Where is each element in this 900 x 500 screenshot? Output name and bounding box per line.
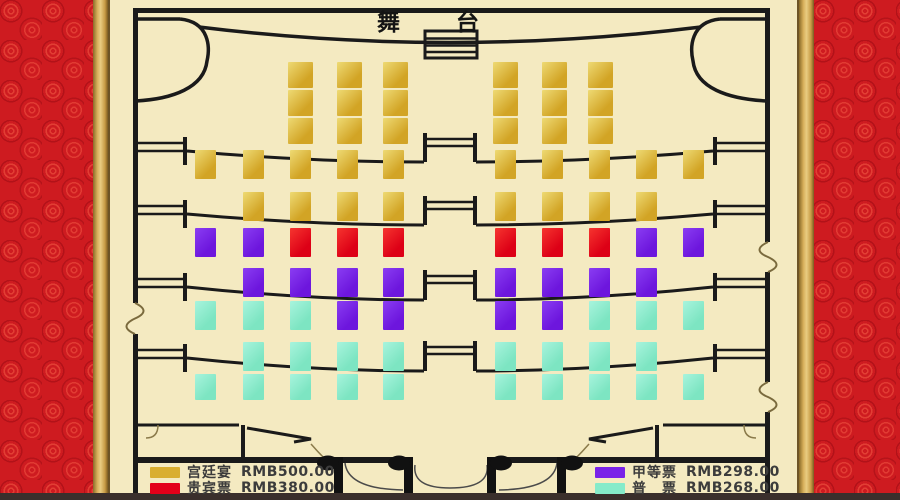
- seat-gold[interactable]: [542, 150, 563, 179]
- legend-label: 普 票: [632, 478, 677, 498]
- seat-gold[interactable]: [383, 192, 404, 221]
- seat-purple[interactable]: [243, 268, 264, 297]
- seat-teal[interactable]: [243, 342, 264, 371]
- seat-teal[interactable]: [589, 301, 610, 330]
- seat-gold[interactable]: [337, 150, 358, 179]
- seat-gold[interactable]: [290, 150, 311, 179]
- seat-purple[interactable]: [290, 268, 311, 297]
- seat-gold[interactable]: [383, 90, 408, 116]
- seat-red[interactable]: [542, 228, 563, 257]
- seat-teal[interactable]: [243, 301, 264, 330]
- seat-red[interactable]: [337, 228, 358, 257]
- seat-gold[interactable]: [493, 62, 518, 88]
- seat-gold[interactable]: [337, 118, 362, 144]
- seat-teal[interactable]: [589, 342, 610, 371]
- seat-gold[interactable]: [493, 118, 518, 144]
- seat-teal[interactable]: [542, 374, 563, 400]
- seat-teal[interactable]: [290, 342, 311, 371]
- seat-teal[interactable]: [683, 374, 704, 400]
- seat-purple[interactable]: [636, 268, 657, 297]
- seat-gold[interactable]: [495, 192, 516, 221]
- seat-gold[interactable]: [683, 150, 704, 179]
- seat-gold[interactable]: [290, 192, 311, 221]
- seat-teal[interactable]: [683, 301, 704, 330]
- seat-teal[interactable]: [243, 374, 264, 400]
- seat-gold[interactable]: [383, 118, 408, 144]
- seat-red[interactable]: [495, 228, 516, 257]
- seat-gold[interactable]: [542, 90, 567, 116]
- seat-layer: [0, 0, 900, 500]
- seat-gold[interactable]: [588, 90, 613, 116]
- seat-purple[interactable]: [383, 301, 404, 330]
- seat-teal[interactable]: [636, 342, 657, 371]
- seat-teal[interactable]: [290, 301, 311, 330]
- seat-purple[interactable]: [495, 301, 516, 330]
- legend-price: RMB380.00: [241, 480, 335, 496]
- seat-teal[interactable]: [636, 374, 657, 400]
- seat-gold[interactable]: [383, 150, 404, 179]
- seat-gold[interactable]: [636, 150, 657, 179]
- seat-gold[interactable]: [288, 90, 313, 116]
- seat-gold[interactable]: [337, 90, 362, 116]
- seat-teal[interactable]: [495, 342, 516, 371]
- seat-gold[interactable]: [337, 62, 362, 88]
- seat-teal[interactable]: [383, 342, 404, 371]
- gold-swatch: [150, 467, 180, 478]
- seat-gold[interactable]: [495, 150, 516, 179]
- seat-teal[interactable]: [337, 374, 358, 400]
- legend-price: RMB298.00: [686, 464, 780, 480]
- seat-gold[interactable]: [195, 150, 216, 179]
- stage-label: 舞台: [377, 3, 535, 37]
- legend-right: 甲等票 RMB298.00 普 票 RMB268.00: [595, 464, 780, 496]
- seat-gold[interactable]: [288, 62, 313, 88]
- legend-item-purple: 甲等票 RMB298.00: [595, 464, 780, 480]
- seat-gold[interactable]: [588, 118, 613, 144]
- seat-purple[interactable]: [337, 268, 358, 297]
- teal-swatch: [595, 483, 625, 494]
- legend-price: RMB500.00: [241, 464, 335, 480]
- seat-purple[interactable]: [542, 301, 563, 330]
- seat-gold[interactable]: [383, 62, 408, 88]
- seat-gold[interactable]: [588, 62, 613, 88]
- seat-gold[interactable]: [243, 150, 264, 179]
- seat-purple[interactable]: [683, 228, 704, 257]
- seat-red[interactable]: [290, 228, 311, 257]
- seat-purple[interactable]: [383, 268, 404, 297]
- seat-purple[interactable]: [243, 228, 264, 257]
- seat-gold[interactable]: [636, 192, 657, 221]
- legend-price: RMB268.00: [686, 480, 780, 496]
- seat-red[interactable]: [589, 228, 610, 257]
- seat-purple[interactable]: [589, 268, 610, 297]
- legend-item-gold: 宫廷宴 RMB500.00: [150, 464, 335, 480]
- seat-gold[interactable]: [589, 150, 610, 179]
- seat-teal[interactable]: [542, 342, 563, 371]
- seat-teal[interactable]: [195, 301, 216, 330]
- seat-gold[interactable]: [288, 118, 313, 144]
- seat-purple[interactable]: [337, 301, 358, 330]
- seat-teal[interactable]: [195, 374, 216, 400]
- red-swatch: [150, 483, 180, 494]
- seat-teal[interactable]: [337, 342, 358, 371]
- legend-item-red: 贵宾票 RMB380.00: [150, 480, 335, 496]
- seat-teal[interactable]: [495, 374, 516, 400]
- seat-purple[interactable]: [636, 228, 657, 257]
- seat-purple[interactable]: [195, 228, 216, 257]
- seat-teal[interactable]: [636, 301, 657, 330]
- seat-teal[interactable]: [290, 374, 311, 400]
- seat-purple[interactable]: [495, 268, 516, 297]
- seat-purple[interactable]: [542, 268, 563, 297]
- seat-gold[interactable]: [243, 192, 264, 221]
- legend-left: 宫廷宴 RMB500.00 贵宾票 RMB380.00: [150, 464, 335, 496]
- seat-gold[interactable]: [493, 90, 518, 116]
- purple-swatch: [595, 467, 625, 478]
- seat-gold[interactable]: [337, 192, 358, 221]
- seat-teal[interactable]: [383, 374, 404, 400]
- seat-gold[interactable]: [542, 62, 567, 88]
- seat-teal[interactable]: [589, 374, 610, 400]
- seat-gold[interactable]: [542, 118, 567, 144]
- seat-gold[interactable]: [542, 192, 563, 221]
- seat-gold[interactable]: [589, 192, 610, 221]
- seating-chart: 舞台: [0, 0, 900, 500]
- seat-red[interactable]: [383, 228, 404, 257]
- legend-label: 贵宾票: [187, 478, 232, 498]
- legend-item-teal: 普 票 RMB268.00: [595, 480, 780, 496]
